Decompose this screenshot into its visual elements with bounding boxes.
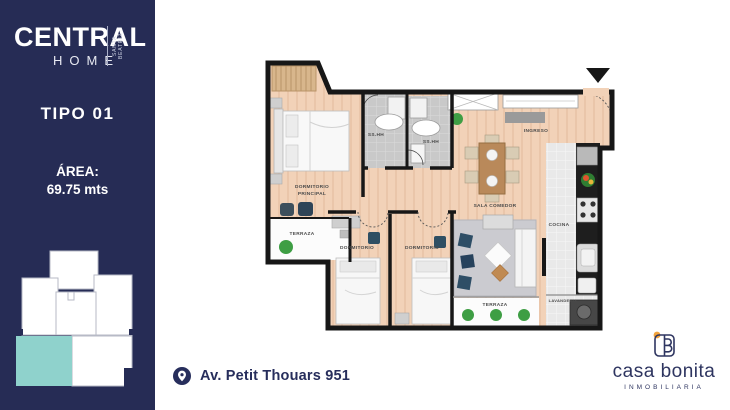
doormat [505,112,545,123]
label-terrace-left: TERRAZA [289,231,314,237]
laundry-sink [578,278,596,293]
area-label: ÁREA: [0,163,155,181]
agency-logo: casa bonita INMOBILIARIA [598,330,730,391]
address-row: Av. Petit Thouars 951 [172,366,350,386]
label-master-bedroom: DORMITORIO [295,184,329,190]
label-kitchen: COCINA [549,222,570,228]
label-living-dining: SALA COMEDOR [474,203,517,209]
floorplan: DORMITORIO PRINCIPAL TERRAZA SS.HH SS.HH… [250,52,620,342]
label-bedroom-2: DORMITORIO [405,245,439,251]
brand-tagline: SANTA BEATRIZ [112,25,122,67]
entrance-arrow-icon [586,68,610,83]
sofa [515,229,536,287]
fridge [577,147,599,165]
label-bedroom-1: DORMITORIO [340,245,374,251]
bed-headboard [274,109,283,173]
sidebar-panel: CENTRAL HOME SANTA BEATRIZ TIPO 01 ÁREA:… [0,0,155,410]
agency-subtitle: INMOBILIARIA [598,384,730,391]
label-bathroom-1: SS.HH [368,132,384,138]
entry-opening [583,88,609,96]
unit-type-label: TIPO 01 [0,104,155,124]
label-entry: INGRESO [524,128,548,134]
location-pin-icon [172,366,192,386]
area-value: 69.75 mts [0,181,155,199]
area-block: ÁREA: 69.75 mts [0,163,155,199]
building-keyplan [10,248,142,398]
agency-name: casa bonita [598,362,730,381]
address-text: Av. Petit Thouars 951 [200,368,350,384]
label-laundry: LAVANDERIA [549,298,578,303]
brand-separator [107,26,108,66]
label-master-bedroom-2: PRINCIPAL [298,191,326,197]
agency-mark-icon [649,330,679,360]
label-terrace-bottom: TERRAZA [482,302,507,308]
keyplan-highlighted-unit [16,336,72,386]
label-bathroom-2: SS.HH [423,139,439,145]
entry-closets [448,93,578,110]
brand-logo: CENTRAL HOME SANTA BEATRIZ [14,24,142,74]
stove [577,198,599,222]
